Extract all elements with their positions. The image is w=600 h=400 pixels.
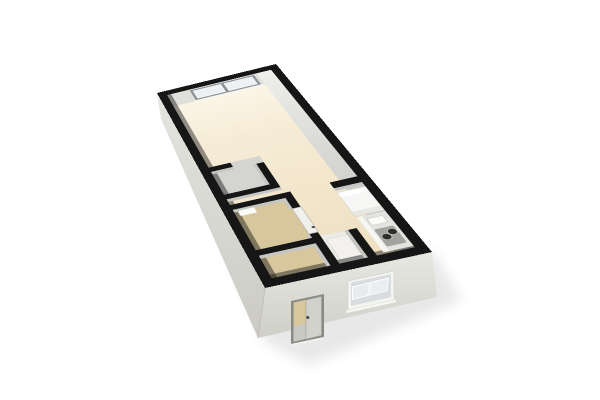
entry-door: [291, 294, 324, 346]
entry-door-handle: [306, 316, 309, 319]
floor-plan-render: [0, 0, 600, 400]
